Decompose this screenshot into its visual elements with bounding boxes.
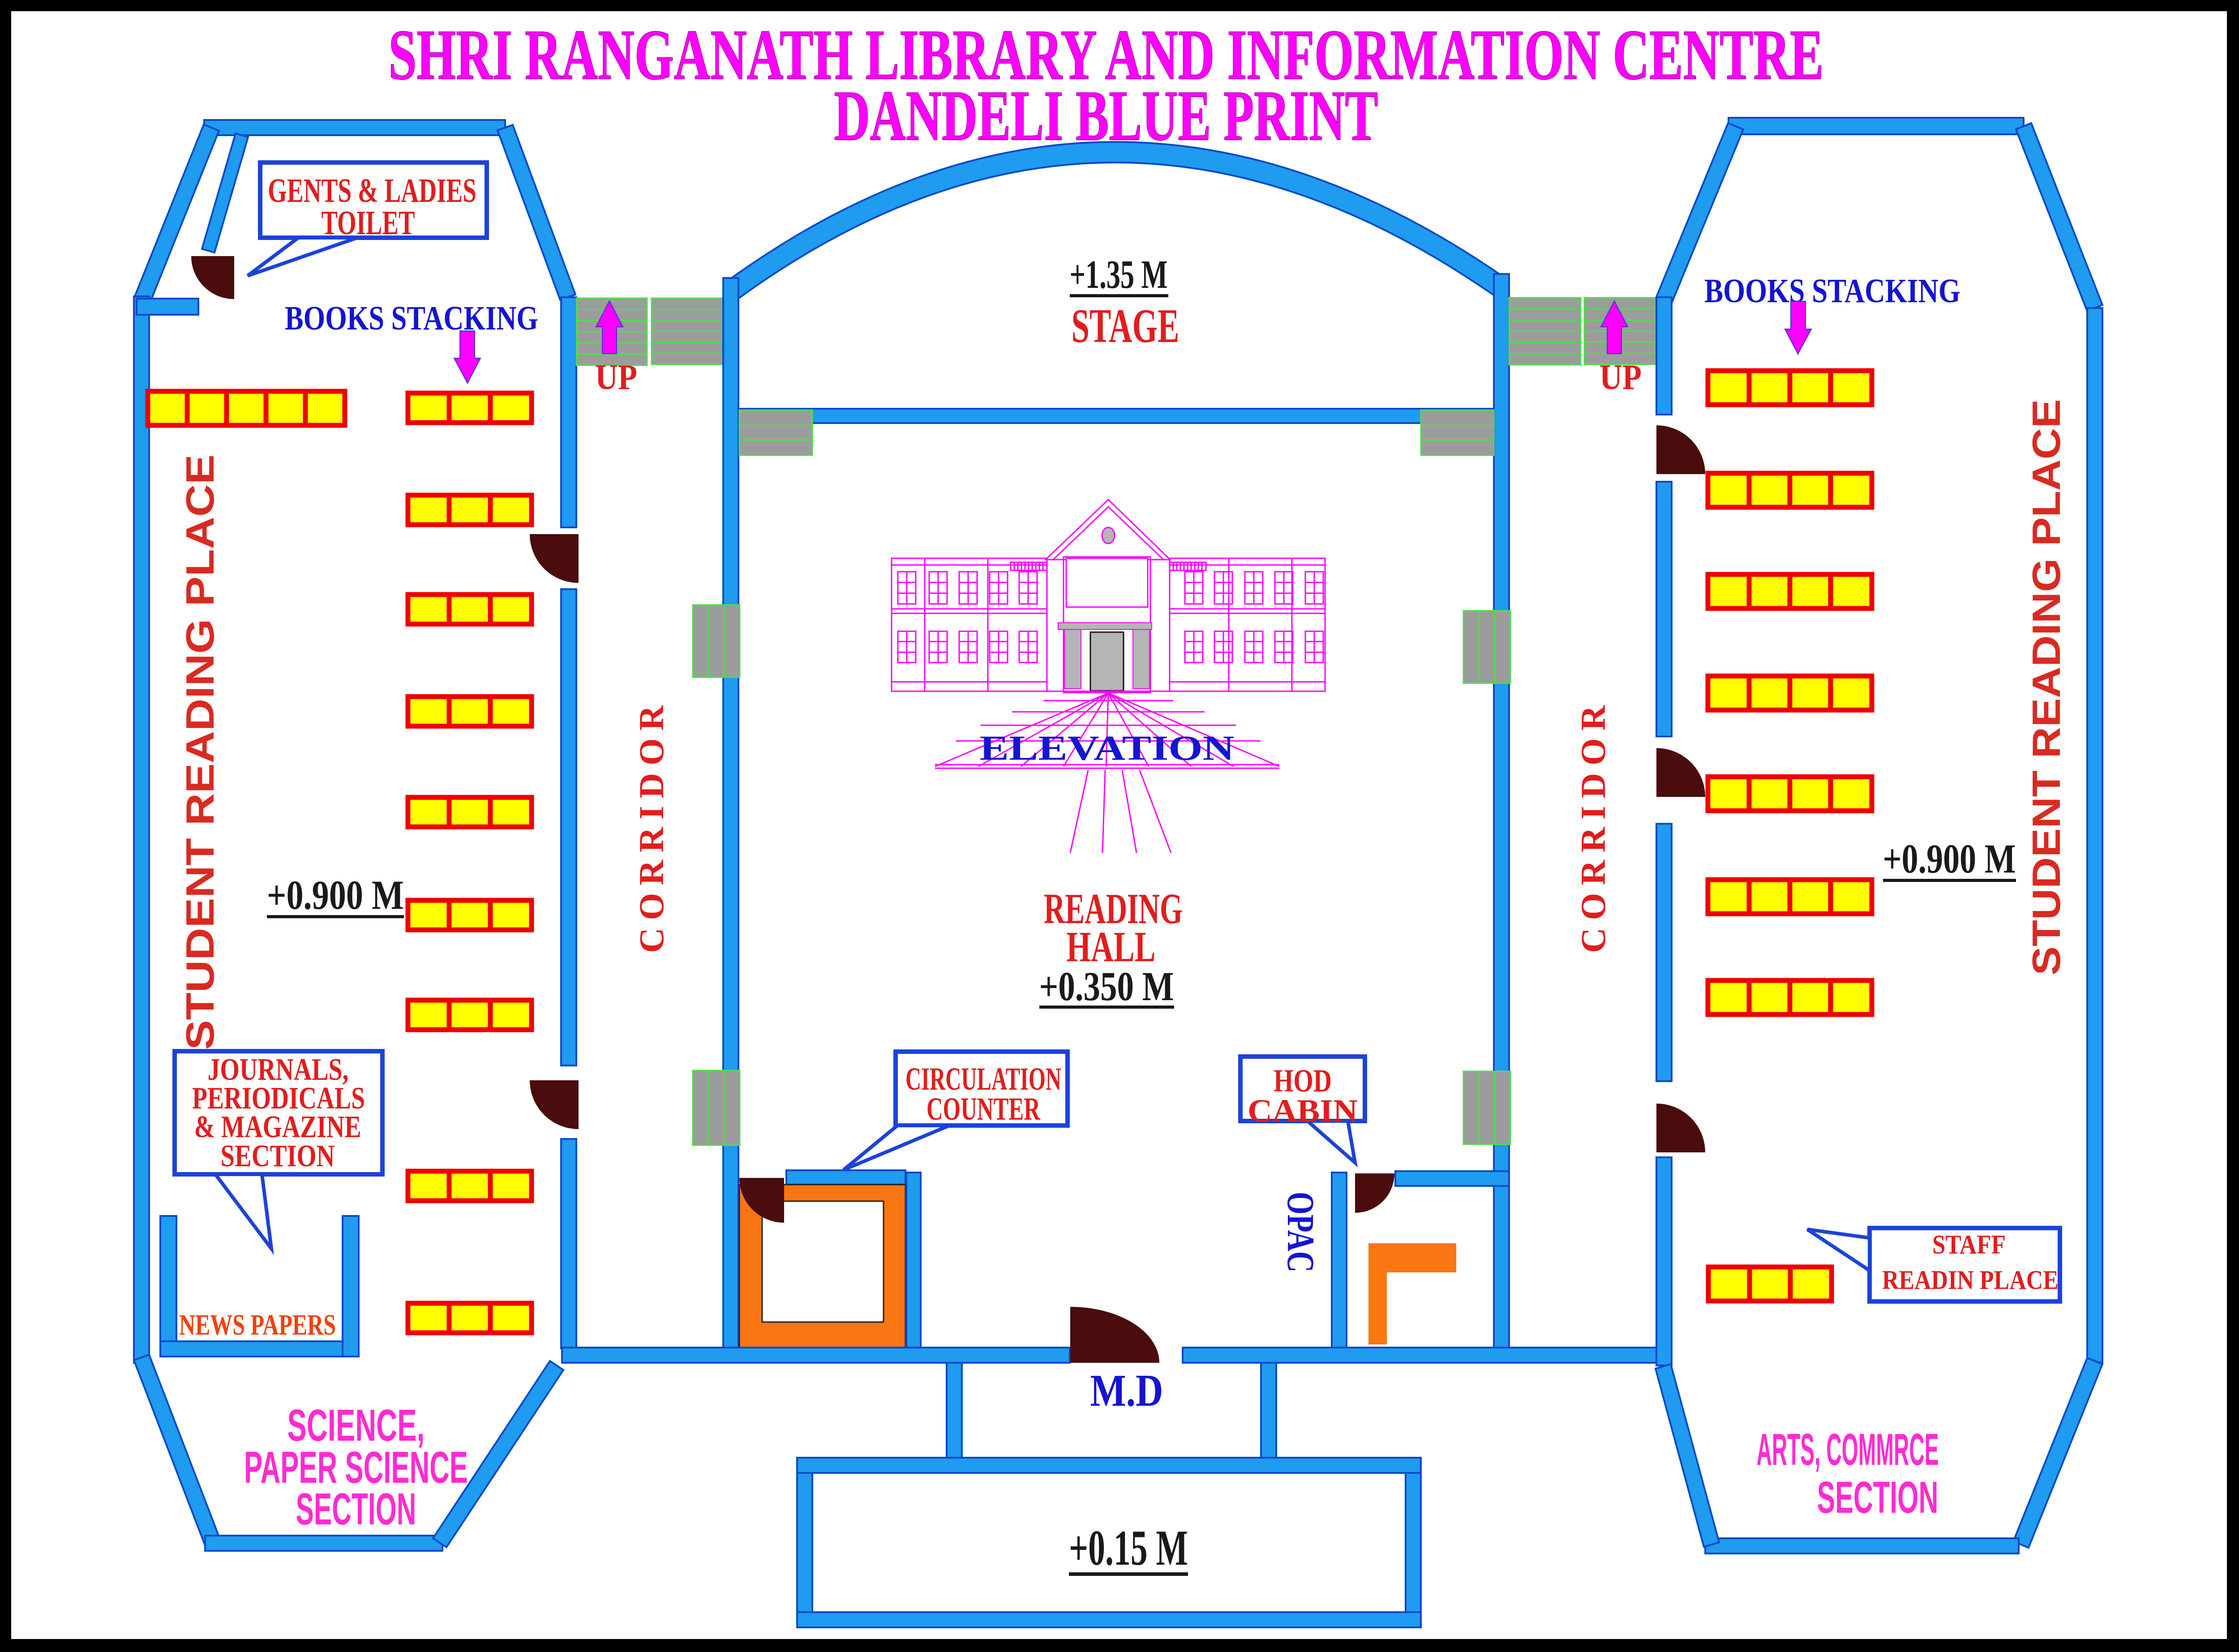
svg-text:+0.900 M: +0.900 M <box>267 872 404 918</box>
svg-text:OPAC: OPAC <box>1279 1192 1322 1272</box>
svg-text:STAFF: STAFF <box>1932 1230 2006 1259</box>
svg-text:STUDENT READING PLACE: STUDENT READING PLACE <box>2024 399 2068 976</box>
svg-text:ELEVATION: ELEVATION <box>980 728 1235 767</box>
svg-text:COUNTER: COUNTER <box>926 1091 1041 1127</box>
svg-text:CABIN: CABIN <box>1248 1093 1358 1129</box>
svg-text:+1.35 M: +1.35 M <box>1070 253 1168 297</box>
svg-text:READIN PLACE: READIN PLACE <box>1882 1265 2059 1295</box>
svg-text:M.D: M.D <box>1090 1365 1163 1416</box>
svg-text:UP: UP <box>1600 358 1642 397</box>
svg-text:C O R R I D O R: C O R R I D O R <box>1574 705 1613 953</box>
svg-text:BOOKS STACKING: BOOKS STACKING <box>1704 272 1960 310</box>
svg-text:+0.350 M: +0.350 M <box>1039 963 1174 1009</box>
svg-text:SECTION: SECTION <box>296 1484 416 1534</box>
svg-text:BOOKS STACKING: BOOKS STACKING <box>285 300 538 337</box>
svg-text:+0.15 M: +0.15 M <box>1069 1520 1188 1576</box>
svg-text:STAGE: STAGE <box>1072 300 1180 353</box>
svg-text:SECTION: SECTION <box>221 1139 335 1173</box>
svg-text:STUDENT READING PLACE: STUDENT READING PLACE <box>178 454 222 1050</box>
svg-text:ARTS, COMMRCE: ARTS, COMMRCE <box>1757 1425 1939 1475</box>
svg-text:SECTION: SECTION <box>1817 1472 1939 1523</box>
svg-text:+0.900 M: +0.900 M <box>1883 836 2016 882</box>
svg-text:TOILET: TOILET <box>322 204 415 242</box>
svg-text:C O R R I D O R: C O R R I D O R <box>632 705 671 953</box>
svg-text:UP: UP <box>595 358 637 397</box>
svg-text:NEWS PAPERS: NEWS PAPERS <box>179 1309 336 1341</box>
